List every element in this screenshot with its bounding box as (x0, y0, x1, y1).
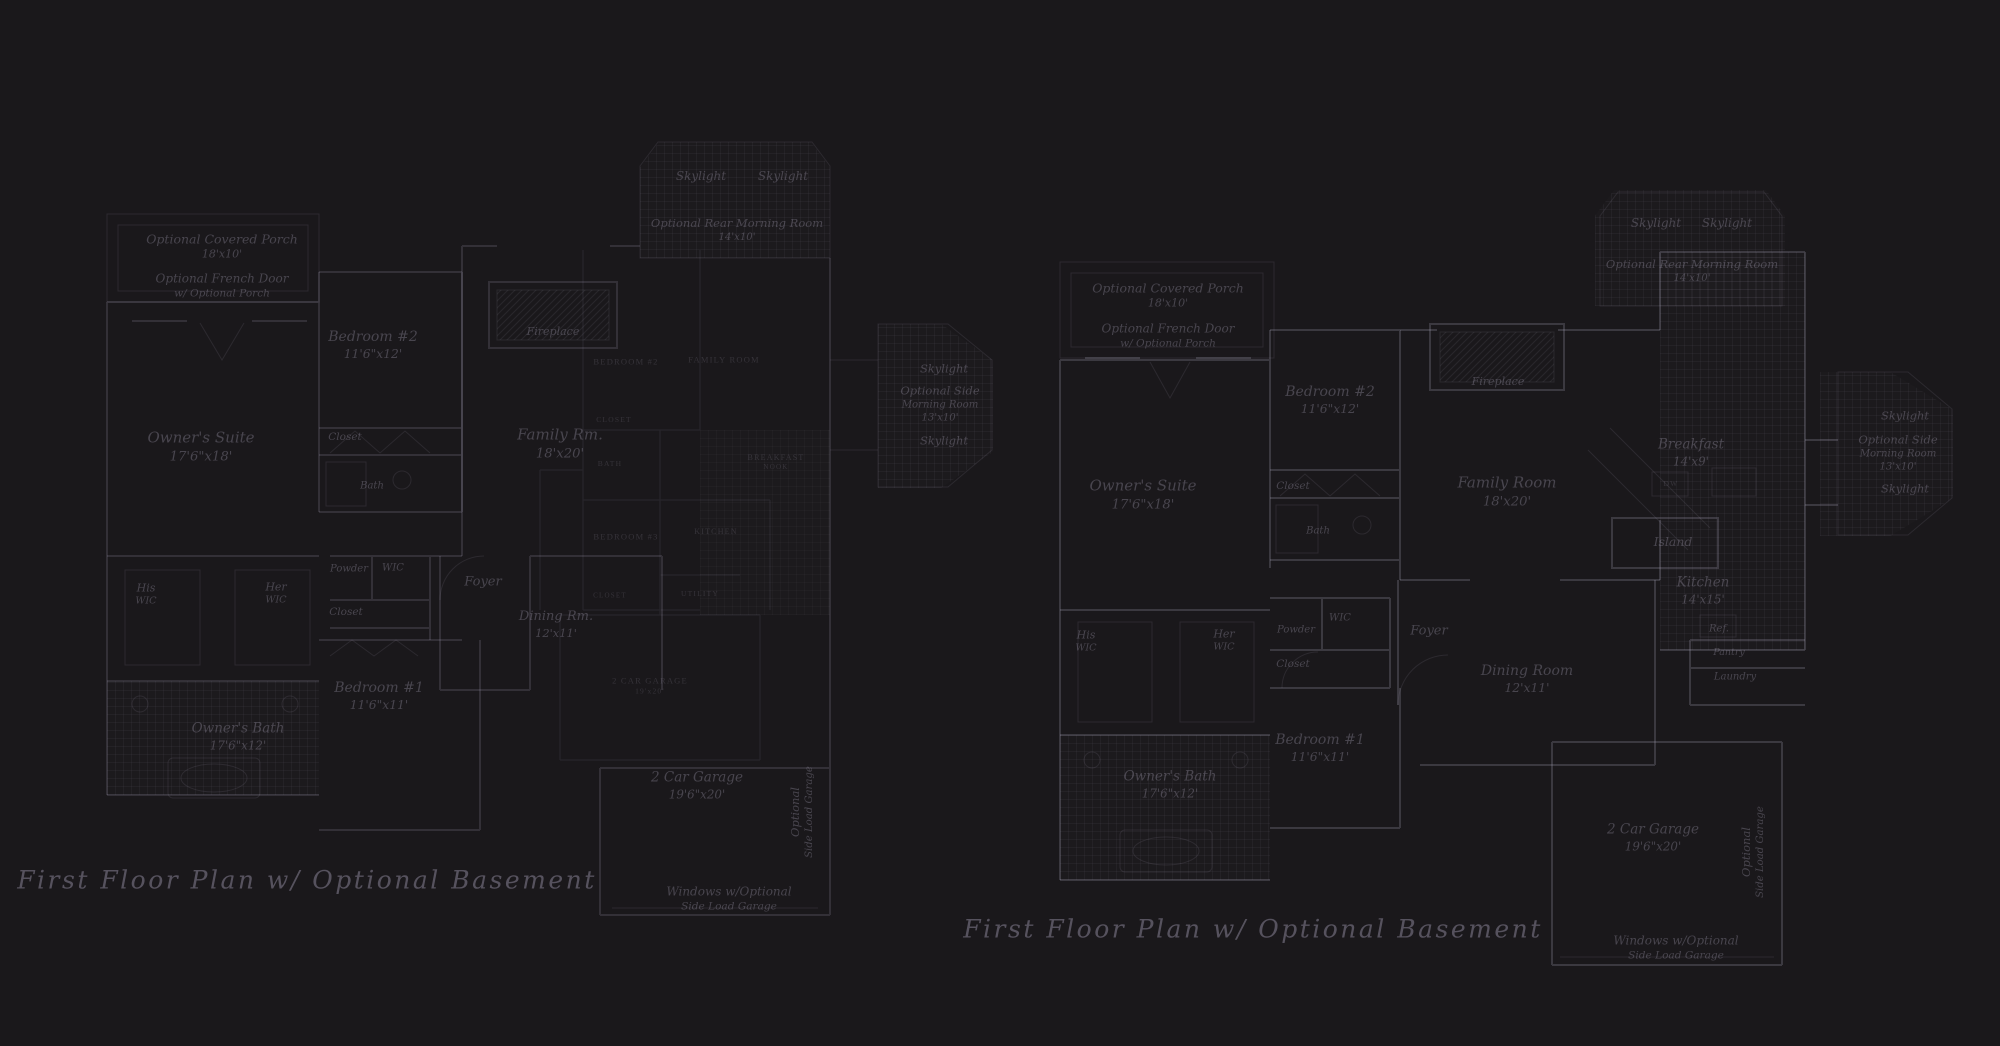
right-powder-label: Powder (1277, 624, 1315, 637)
right-skylight-side-label-a: Skylight (1881, 409, 1929, 424)
right-skylight-side-label-b: Skylight (1881, 482, 1929, 497)
right-plan-caption: First Floor Plan w/ Optional Basement (963, 915, 1543, 944)
right-island-label: Island (1654, 534, 1693, 550)
left-overlay-kitchen-label: KITCHEN (694, 527, 738, 537)
right-bedroom1-label: Bedroom #111'6"x11' (1275, 731, 1364, 765)
left-side-load-garage-label: OptionalSide Load Garage (788, 766, 816, 858)
left-skylight-side-label-a: Skylight (920, 362, 968, 377)
right-skylight-rear-label-a: Skylight (1631, 216, 1681, 232)
left-overlay-garage-label: 2 CAR GARAGE19'x20' (612, 676, 688, 697)
right-pantry-label: Pantry (1713, 647, 1744, 659)
right-fireplace-label: Fireplace (1472, 375, 1525, 389)
right-kitchen-label: Kitchen14'x15' (1677, 575, 1730, 608)
left-fireplace-label: Fireplace (527, 325, 580, 339)
left-overlay-family-room-label: FAMILY ROOM (688, 354, 760, 365)
left-overlay-closet-label-a: CLOSET (596, 415, 632, 425)
left-overlay-closet-label-b: CLOSET (593, 591, 627, 600)
right-owners-bath-label: Owner's Bath17'6"x12' (1124, 769, 1217, 802)
left-family-rm-label: Family Rm.18'x20' (517, 426, 603, 463)
left-foyer-label: Foyer (464, 575, 501, 592)
right-french-door-label: Optional French Doorw/ Optional Porch (1102, 321, 1235, 350)
left-side-morning-room-label: Optional SideMorning Room13'x10' (900, 383, 979, 424)
left-skylight-rear-label-b: Skylight (758, 169, 808, 185)
right-dw-label: DW (1664, 479, 1679, 489)
left-owners-suite-label: Owner's Suite17'6"x18' (147, 429, 254, 466)
left-bath-label: Bath (360, 480, 384, 493)
right-rear-morning-room-label: Optional Rear Morning Room14'x10' (1606, 257, 1778, 285)
right-ref-label: Ref. (1709, 623, 1729, 636)
left-overlay-bedroom3-label: BEDROOM #3 (593, 531, 658, 542)
right-dining-room-label: Dining Room12'x11' (1481, 662, 1573, 696)
left-closet-bedroom2-label: Closet (328, 431, 362, 445)
left-overlay-bath-label: BATH (598, 459, 622, 469)
right-laundry-label: Laundry (1714, 671, 1756, 684)
left-plan-caption: First Floor Plan w/ Optional Basement (17, 866, 597, 895)
right-covered-porch-label: Optional Covered Porch18'x10' (1092, 281, 1244, 312)
left-dining-label: Dining Rm.12'x11' (519, 609, 593, 641)
left-skylight-side-label-b: Skylight (920, 434, 968, 449)
left-rear-morning-room-label: Optional Rear Morning Room14'x10' (651, 216, 823, 244)
left-wic-label: WIC (382, 562, 404, 575)
right-skylight-rear-label-b: Skylight (1702, 216, 1752, 232)
left-garage-label: 2 Car Garage19'6"x20' (651, 770, 743, 803)
right-her-wic-label: HerWIC (1213, 628, 1234, 655)
right-bath-label: Bath (1306, 525, 1330, 538)
right-bedroom2-label: Bedroom #211'6"x12' (1285, 383, 1374, 417)
left-owners-bath-label: Owner's Bath17'6"x12' (192, 721, 285, 754)
left-bedroom2-label: Bedroom #211'6"x12' (328, 328, 417, 362)
left-covered-porch-label: Optional Covered Porch18'x10' (146, 232, 298, 263)
left-closet-hall-label: Closet (329, 606, 363, 620)
left-her-wic-label: HerWIC (265, 581, 286, 608)
right-breakfast-label: Breakfast14'x9' (1658, 437, 1724, 470)
left-overlay-breakfast-nook-label: BREAKFASTNOOK (748, 453, 805, 473)
left-powder-label: Powder (330, 563, 368, 576)
left-windows-note-label: Windows w/OptionalSide Load Garage (666, 884, 791, 913)
right-side-load-garage-label: OptionalSide Load Garage (1739, 806, 1767, 898)
right-his-wic-label: HisWIC (1075, 629, 1096, 656)
left-bedroom1-label: Bedroom #111'6"x11' (334, 679, 423, 713)
right-family-room-label: Family Room18'x20' (1458, 474, 1557, 511)
right-side-morning-room-label: Optional SideMorning Room13'x10' (1858, 432, 1937, 473)
right-owners-suite-label: Owner's Suite17'6"x18' (1089, 477, 1196, 514)
right-garage-label: 2 Car Garage19'6"x20' (1607, 822, 1699, 855)
left-skylight-rear-label-a: Skylight (676, 169, 726, 185)
right-closet-bedroom2-label: Closet (1276, 480, 1310, 494)
right-windows-note-label: Windows w/OptionalSide Load Garage (1613, 933, 1738, 962)
right-wic-label: WIC (1329, 612, 1351, 625)
left-overlay-utility-label: UTILITY (681, 589, 719, 599)
blueprint-canvas: Optional Covered Porch18'x10'Optional Fr… (0, 0, 2000, 1046)
left-overlay-bedroom2-label: BEDROOM #2 (593, 356, 658, 367)
left-his-wic-label: HisWIC (135, 582, 156, 609)
right-foyer-label: Foyer (1410, 624, 1447, 641)
right-closet-hall-label: Closet (1276, 658, 1310, 672)
left-french-door-label: Optional French Doorw/ Optional Porch (156, 271, 289, 300)
